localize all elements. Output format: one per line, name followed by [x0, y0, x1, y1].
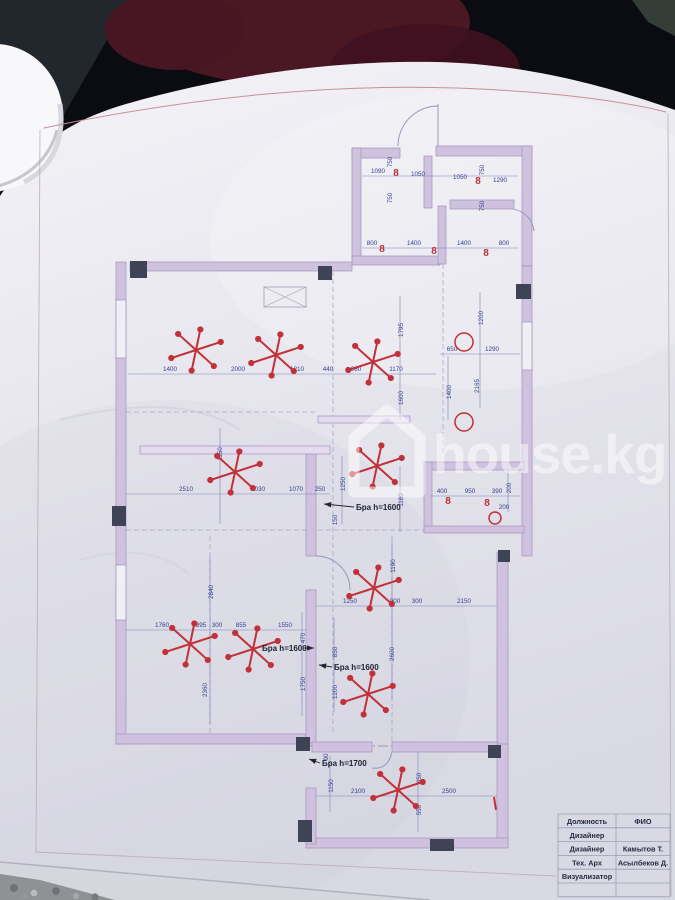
dimension-label: 440 — [323, 366, 334, 373]
chandelier-arm-tip — [298, 344, 304, 350]
dimension-label: 1400 — [407, 240, 422, 247]
chandelier-arm-tip — [375, 564, 381, 570]
chandelier-arm-tip — [212, 633, 218, 639]
chandelier-arm-tip — [207, 477, 213, 483]
dimension-label: 1050 — [411, 171, 426, 178]
dimension-label: 950 — [465, 488, 476, 495]
bra-label: Бра h=1600 — [334, 663, 379, 672]
spot-light-symbol: 8 — [431, 246, 437, 257]
chandelier-center — [396, 788, 400, 792]
dimension-label: 1190 — [390, 559, 397, 573]
dimension-label: 1250 — [343, 598, 358, 605]
dimension-label: 750 — [479, 164, 486, 175]
dimension-label: 2500 — [442, 788, 457, 795]
chandelier-arm-tip — [189, 367, 195, 373]
dimension-label: 1400 — [163, 366, 178, 373]
dimension-label: 1200 — [478, 311, 485, 326]
chandelier-arm-tip — [361, 711, 367, 717]
chandelier-arm-tip — [399, 766, 405, 772]
chandelier-arm-tip — [183, 661, 189, 667]
chandelier-arm-tip — [254, 625, 260, 631]
chandelier-arm-tip — [346, 593, 352, 599]
dimension-label: 2360 — [202, 683, 209, 698]
chandelier-arm-tip — [255, 336, 261, 342]
chandelier-arm-tip — [392, 479, 398, 485]
dimension-label: 1290 — [493, 177, 508, 184]
dimension-label: 750 — [479, 200, 486, 211]
chandelier-arm-tip — [236, 448, 242, 454]
title-block-role: Визуализатор — [562, 872, 613, 881]
dimension-label: 1550 — [278, 622, 293, 629]
dimension-label: 150 — [332, 514, 339, 525]
chandelier-arm-tip — [378, 442, 384, 448]
chandelier-arm-tip — [228, 489, 234, 495]
chandelier-arm-tip — [345, 367, 351, 373]
title-block-name: ФИО — [634, 817, 651, 826]
chandelier-arm-tip — [232, 630, 238, 636]
dimension-label: 1760 — [155, 622, 170, 629]
chandelier-arm-tip — [197, 326, 203, 332]
dimension-label: 855 — [236, 622, 247, 629]
chandelier-arm-tip — [390, 683, 396, 689]
chandelier-arm-tip — [399, 455, 405, 461]
dimension-label: 1400 — [446, 385, 453, 400]
chandelier-arm-tip — [248, 360, 254, 366]
dimension-label: 1750 — [300, 677, 307, 692]
chandelier-center — [194, 348, 198, 352]
chandelier-arm-tip — [205, 657, 211, 663]
dimension-label: 2840 — [208, 585, 215, 600]
chandelier-arm-tip — [268, 662, 274, 668]
dimension-label: 300 — [212, 622, 223, 629]
watermark-text: house.kg — [433, 423, 666, 485]
chandelier-arm-tip — [374, 338, 380, 344]
chandelier-arm-tip — [377, 771, 383, 777]
chandelier-arm-tip — [214, 453, 220, 459]
dimension-label: 400 — [437, 488, 448, 495]
dimension-label: 1090 — [371, 168, 386, 175]
chandelier-center — [375, 464, 379, 468]
chandelier-arm-tip — [347, 675, 353, 681]
spot-light-symbol: 8 — [475, 176, 481, 187]
chandelier-arm-tip — [366, 379, 372, 385]
bra-label: Бра h=1700 — [322, 759, 367, 768]
chandelier-center — [371, 360, 375, 364]
chandelier-arm-tip — [352, 343, 358, 349]
dimension-label: 1170 — [389, 366, 403, 373]
title-block-name: Асылбеков Д. — [618, 858, 668, 867]
blueprint-photo: 1090105010501290750750750750800140014008… — [0, 0, 675, 900]
dimension-label: 750 — [387, 156, 394, 167]
bra-label: Бра h=1600 — [356, 503, 401, 512]
dimension-label: 2510 — [179, 486, 194, 493]
bra-label: Бра h=1600 — [262, 644, 307, 653]
chandelier-arm-tip — [383, 707, 389, 713]
chandelier-arm-tip — [396, 577, 402, 583]
chandelier-arm-tip — [391, 807, 397, 813]
dimension-label: 1290 — [485, 346, 500, 353]
chandelier-arm-tip — [367, 605, 373, 611]
dimension-label: 1250 — [340, 477, 347, 492]
dimension-label: 200 — [499, 504, 510, 511]
dimension-label: 2100 — [351, 788, 366, 795]
chandelier-arm-tip — [162, 649, 168, 655]
chandelier-center — [372, 586, 376, 590]
dimension-label: 1150 — [328, 779, 335, 793]
dimension-label: 850 — [332, 646, 339, 657]
dimension-label: 1600 — [398, 391, 405, 406]
dimension-label: 1200 — [332, 685, 339, 700]
dimension-label: 2000 — [231, 366, 246, 373]
dimension-label: 1795 — [398, 323, 405, 338]
dimension-label: 390 — [492, 488, 503, 495]
title-block-role: Дизайнер — [570, 845, 605, 854]
chandelier-arm-tip — [211, 363, 217, 369]
dimension-label: 800 — [367, 240, 378, 247]
chandelier-arm-tip — [191, 620, 197, 626]
chandelier-arm-tip — [370, 795, 376, 801]
dimension-label: 1050 — [453, 174, 468, 181]
spot-light-symbol: 8 — [445, 496, 451, 507]
chandelier-arm-tip — [168, 355, 174, 361]
chandelier-arm-tip — [291, 368, 297, 374]
chandelier-center — [274, 353, 278, 357]
chandelier-arm-tip — [225, 654, 231, 660]
dimension-label: 750 — [387, 192, 394, 203]
chandelier-arm-tip — [257, 461, 263, 467]
chandelier-center — [366, 692, 370, 696]
spot-light-symbol: 8 — [379, 244, 385, 255]
chandelier-arm-tip — [353, 569, 359, 575]
title-block-role: Должность — [567, 817, 608, 826]
chandelier-center — [188, 642, 192, 646]
dimension-label: 470 — [300, 632, 307, 643]
title-block-name: Камытов Т. — [623, 845, 663, 854]
dimension-label: 2600 — [389, 647, 396, 662]
chandelier-arm-tip — [250, 485, 256, 491]
dimension-label: 2165 — [474, 379, 481, 394]
chandelier-arm-tip — [413, 803, 419, 809]
chandelier-arm-tip — [389, 601, 395, 607]
dimension-label: 300 — [412, 598, 423, 605]
dimension-label: 2150 — [457, 598, 472, 605]
photo-canvas: 1090105010501290750750750750800140014008… — [0, 0, 675, 900]
chandelier-arm-tip — [395, 351, 401, 357]
spot-light-symbol: 8 — [393, 168, 399, 179]
chandelier-arm-tip — [340, 699, 346, 705]
chandelier-arm-tip — [388, 375, 394, 381]
chandelier-center — [233, 470, 237, 474]
title-block-role: Дизайнер — [570, 831, 605, 840]
chandelier-arm-tip — [169, 625, 175, 631]
chandelier-arm-tip — [218, 339, 224, 345]
dimension-label: 1400 — [457, 240, 472, 247]
chandelier-arm-tip — [175, 331, 181, 337]
spot-light-symbol: 8 — [483, 248, 489, 259]
chandelier-arm-tip — [269, 372, 275, 378]
spot-light-symbol: 8 — [484, 498, 490, 509]
chandelier-arm-tip — [246, 666, 252, 672]
chandelier-center — [251, 647, 255, 651]
chandelier-arm-tip — [420, 779, 426, 785]
chandelier-arm-tip — [277, 331, 283, 337]
dimension-label: 1070 — [289, 486, 304, 493]
dimension-label: 800 — [499, 240, 510, 247]
title-block-role: Тех. Арх — [572, 858, 602, 867]
dimension-label: 250 — [315, 486, 326, 493]
